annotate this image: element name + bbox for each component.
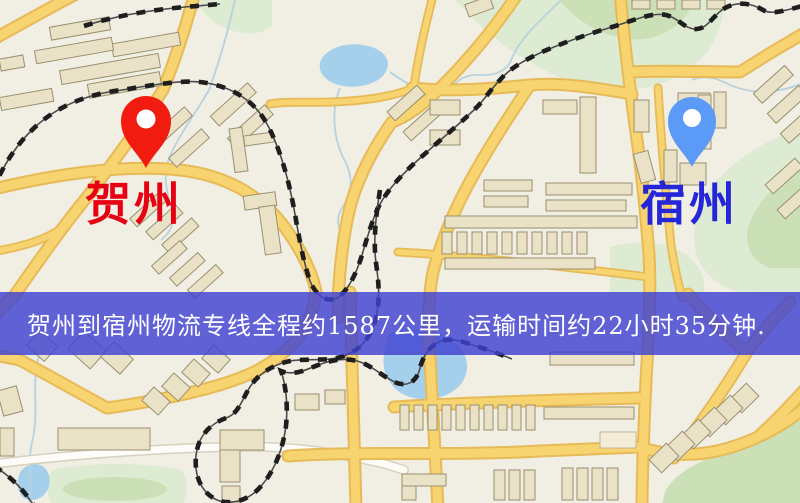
destination-city-label: 宿州 xyxy=(640,181,738,227)
route-info-banner: 贺州到宿州物流专线全程约1587公里，运输时间约22小时35分钟. xyxy=(0,292,800,355)
destination-pin-hole xyxy=(683,109,701,127)
map-background xyxy=(0,0,800,503)
origin-pin-hole xyxy=(137,110,156,129)
route-info-text: 贺州到宿州物流专线全程约1587公里，运输时间约22小时35分钟. xyxy=(0,306,766,341)
map-image: 贺州 宿州 贺州到宿州物流专线全程约1587公里，运输时间约22小时35分钟. xyxy=(0,0,800,503)
origin-city-label: 贺州 xyxy=(85,181,183,227)
